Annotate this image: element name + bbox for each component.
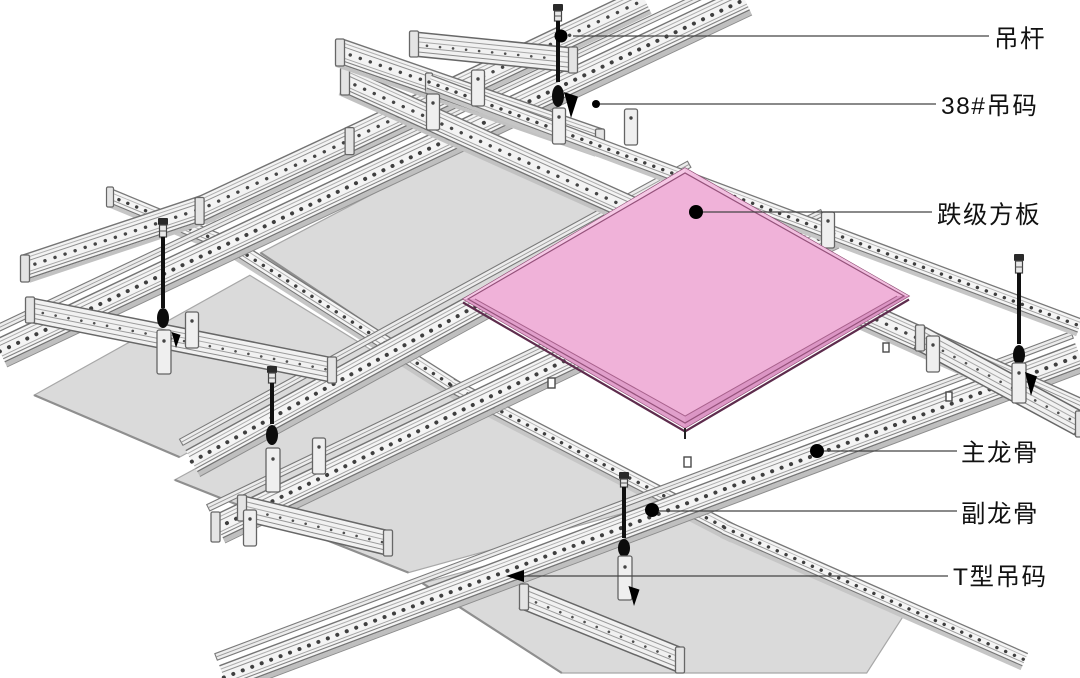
svg-text:38#吊码: 38#吊码 [941,93,1038,120]
svg-text:吊杆: 吊杆 [994,25,1046,53]
svg-text:副龙骨: 副龙骨 [961,500,1039,528]
svg-text:主龙骨: 主龙骨 [961,439,1039,467]
svg-text:T型吊码: T型吊码 [953,563,1047,591]
svg-text:跌级方板: 跌级方板 [937,201,1041,229]
